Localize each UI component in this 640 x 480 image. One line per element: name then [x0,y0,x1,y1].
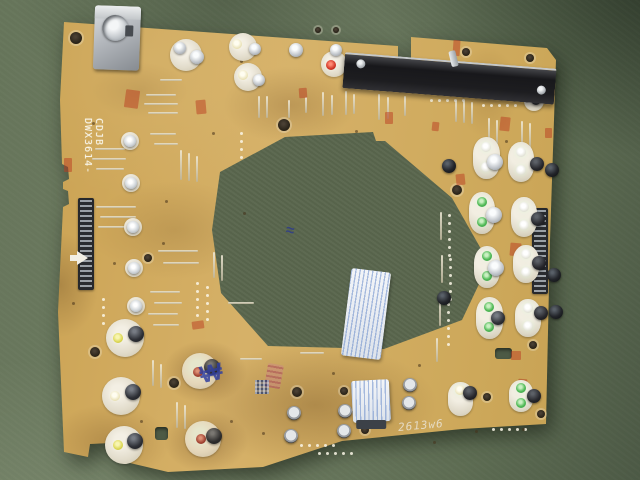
pot-shaft [289,43,303,57]
solder-pad [318,452,321,455]
jumper-wire [436,338,438,362]
pot-shaft [124,135,136,147]
electrolytic-capacitor [547,268,561,282]
solder-pad [102,306,105,309]
mounting-hole [90,347,100,357]
jumper-wire [154,302,182,304]
red-qc-stamp [195,100,206,115]
led [110,391,120,401]
led [477,217,487,227]
tact-switch-button [486,207,502,223]
mounting-hole [333,27,339,33]
solder-pad [102,298,105,301]
rotary-pot [229,33,257,61]
dirt-speck [332,372,335,375]
solder-pad [240,140,243,143]
solder-pad [332,444,335,447]
jumper-wire [148,112,178,114]
blue-matrix-stamp [255,380,269,394]
solder-pad [449,266,452,269]
part-code: CDJB [93,118,104,174]
tact-switch-button [491,311,505,325]
arrow-head [77,251,88,265]
dirt-speck [262,432,265,435]
pot-shaft [249,43,261,55]
red-qc-stamp [499,117,510,132]
pot-shaft [330,44,342,56]
electrolytic-capacitor [402,396,416,410]
led [484,302,494,312]
rotary-pot [234,63,262,91]
solder-pad [196,298,199,301]
jumper-wire [228,302,254,304]
jumper-wire [266,96,268,118]
pot-shaft [253,74,265,86]
led [521,267,531,277]
jumper-wire [160,364,162,388]
jumper-wire [153,324,179,326]
rotary-pot [121,132,139,150]
dirt-speck [522,428,525,431]
dirt-speck [230,420,233,423]
solder-pad [316,444,319,447]
rotary-pot [127,297,145,315]
jumper-wire [288,100,290,118]
mounting-hole [70,32,82,44]
jumper-wire [496,120,498,144]
solder-pad [447,335,450,338]
led [516,398,526,408]
dirt-speck [72,302,75,305]
solder-pad [324,444,327,447]
solder-pad [449,274,452,277]
solder-pad [508,428,511,431]
rotary-pot [122,174,140,192]
rotary-pot [106,319,144,357]
led [516,147,526,157]
mounting-hole [340,387,348,395]
jumper-wire [441,255,443,283]
dirt-speck [475,430,478,433]
tact-switch-button [531,212,545,226]
led [523,303,533,313]
rotary-encoder [93,5,141,71]
mounting-hole [452,185,462,195]
jumper-wire [196,156,198,182]
electrolytic-capacitor [287,406,301,420]
solder-pad [240,156,243,159]
solder-pad [449,282,452,285]
pot-shaft [127,221,139,233]
rotary-pot [124,218,142,236]
solder-pad [334,452,337,455]
mounting-hole [537,410,545,418]
dirt-speck [243,212,246,215]
solder-pad [447,327,450,330]
board-hole-to-mat [155,427,168,440]
led [482,251,492,261]
dirt-speck [162,242,165,245]
jumper-wire [163,262,199,264]
silkscreen-arrow [70,251,88,265]
solder-pad [206,318,209,321]
red-qc-stamp [455,174,465,186]
part-number: DWX3614- [82,118,93,174]
mounting-hole [169,378,179,388]
solder-pad [516,428,519,431]
pot-shaft [174,42,186,54]
jumper-wire [160,79,182,81]
jumper-wire [158,250,198,252]
jumper-wire [305,97,307,113]
solder-pad [448,254,451,257]
solder-pad [447,311,450,314]
led [516,165,526,175]
pot-shaft [128,262,140,274]
jumper-wire [322,92,324,116]
rotary-pot [105,426,143,464]
jumper-wire [213,252,215,278]
jumper-wire [184,405,186,429]
ribbon-cable-bottom [351,379,391,423]
electrolytic-capacitor [549,305,563,319]
pot-shaft [190,50,204,64]
jumper-wire [150,133,176,135]
mounting-hole [529,341,537,349]
solder-pad [196,306,199,309]
electrolytic-capacitor [545,163,559,177]
solder-pad [206,302,209,305]
led [196,434,206,444]
solder-pad [448,246,451,249]
solder-pad [102,322,105,325]
solder-pad [500,428,503,431]
dirt-speck [355,130,358,133]
jumper-wire [154,143,178,145]
ribbon-fold [356,420,386,429]
dirt-speck [140,420,143,423]
solder-pad [448,238,451,241]
red-qc-stamp [511,351,521,360]
dirt-speck [165,200,168,203]
tact-switch-button [530,157,544,171]
electrolytic-capacitor [337,424,351,438]
led [519,220,529,230]
solder-pad [448,230,451,233]
solder-pad [206,294,209,297]
dirt-speck [418,364,421,367]
tact-switch-button [487,154,503,170]
solder-pad [342,452,345,455]
solder-pad [196,282,199,285]
led [521,249,531,259]
rotary-pot [185,421,221,457]
tact-switch-button [463,386,477,400]
red-qc-stamp [124,89,140,109]
rotary-pot [288,42,304,58]
ffc-connector [78,198,94,290]
red-qc-stamp [192,320,205,330]
dirt-speck [212,132,215,135]
jumper-wire [96,206,136,208]
pot-shaft [206,428,222,444]
led [481,142,491,152]
jumper-wire [180,150,182,180]
pcb-photo: DWX3614- CDJB 2613w6 ₩ ≈ [0,0,640,480]
arrow-tail [70,255,77,261]
solder-pad [326,452,329,455]
led [519,202,529,212]
jumper-wire [440,212,442,240]
solder-pad [449,258,452,261]
pot-shaft [130,300,142,312]
led [113,333,123,343]
dirt-speck [433,441,436,444]
solder-pad [300,444,303,447]
solder-pad [308,444,311,447]
electrolytic-capacitor [338,404,352,418]
mounting-hole [483,393,491,401]
solder-pad [206,286,209,289]
jumper-wire [146,94,176,96]
solder-pad [102,314,105,317]
led [238,70,248,80]
encoder-slot [125,25,133,36]
red-qc-stamp [64,158,72,172]
solder-pad [196,290,199,293]
electrolytic-capacitor [437,291,451,305]
led [516,383,526,393]
jumper-wire [258,96,260,118]
led [523,321,533,331]
red-qc-stamp [385,112,393,124]
solder-pad [449,290,452,293]
mounting-hole [292,387,302,397]
tact-switch-button [488,260,504,276]
led [232,39,242,49]
electrolytic-capacitor [403,378,417,392]
jumper-wire [240,358,262,360]
rotary-pot [102,377,140,415]
pot-shaft [125,384,141,400]
pot-shaft [125,177,137,189]
electrolytic-capacitor [284,429,298,443]
led [113,440,123,450]
tact-switch-button [527,389,541,403]
jumper-wire [188,153,190,181]
solder-pad [240,132,243,135]
jumper-wire [152,360,154,386]
part-number-label: DWX3614- CDJB [82,118,104,174]
mounting-hole [278,119,290,131]
jumper-wire [221,255,223,281]
solder-pad [350,452,353,455]
led [477,197,487,207]
led [326,60,336,70]
solder-pad [206,310,209,313]
rotary-pot [125,259,143,277]
board-hole-to-mat [495,348,512,359]
pot-shaft [127,433,143,449]
dirt-speck [505,140,508,143]
red-qc-stamp [432,122,440,132]
solder-pad [196,314,199,317]
solder-pad [492,428,495,431]
solder-pad [240,148,243,151]
red-qc-stamp [299,88,308,99]
mounting-hole [315,27,321,33]
jumper-wire [176,402,178,428]
solder-pad [447,319,450,322]
red-qc-stamp [545,128,552,138]
jumper-wire [300,352,324,354]
solder-pad [448,214,451,217]
pot-shaft [128,326,144,342]
jumper-wire [148,313,178,315]
rotary-pot [189,49,205,65]
jumper-wire [144,103,178,105]
jumper-wire [150,291,180,293]
tact-switch-button [534,306,548,320]
electrolytic-capacitor [442,159,456,173]
dirt-speck [113,262,116,265]
mounting-hole [144,254,152,262]
solder-pad [447,343,450,346]
jumper-wire [331,95,333,115]
tact-switch-button [532,256,546,270]
solder-pad [448,222,451,225]
